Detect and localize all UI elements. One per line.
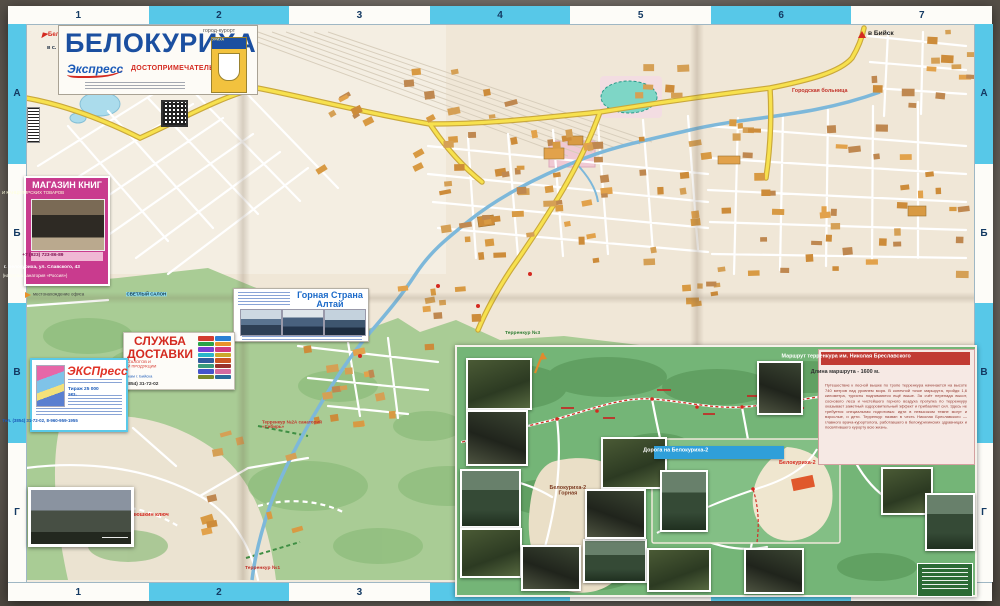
mountain-photo [282, 309, 324, 336]
grid-top-label: 2 [149, 6, 290, 24]
trail-photo [521, 545, 581, 591]
road-title: Дорога на Белокуриха-2 [611, 446, 740, 454]
delivery-title2: ДОСТАВКИ [124, 348, 196, 361]
bookstore-note: местонахождение офиса [33, 292, 84, 297]
grid-top-label: 4 [430, 6, 571, 24]
client-logo-chip [215, 358, 231, 363]
crest-label: БЕЛОКУРИХА [212, 38, 229, 42]
grid-bottom-label: 3 [289, 583, 430, 601]
express-brand: ЭКСПресс [67, 364, 128, 378]
route-description-panel: Маршрут терренкура им. Николая Бреславск… [818, 349, 975, 465]
label-terrenkur3: Терренкур №3 [505, 330, 540, 335]
trail-photo [460, 469, 521, 528]
office-arrow-icon [25, 292, 31, 298]
bookstore-ad: МАГАЗИН КНИГ И КАНЦЕЛЯРСКИХ ТОВАРОВ +7 (… [24, 176, 110, 286]
trail-photo [460, 528, 522, 578]
altai-ad: Горная Страна Алтай [233, 288, 369, 342]
label-terrenkur2: Терренкур №2А санаторий «Сибирь» [262, 420, 332, 429]
trail-photo [744, 548, 804, 594]
client-logo-chip [198, 342, 214, 347]
bookstore-phone: +7 (923) 723-86-89 [7, 252, 79, 257]
grid-left-label: Г [8, 443, 26, 583]
label-bel2-gornaya: Белокуриха-2Горная [555, 485, 629, 504]
altai-fine-print [238, 292, 290, 305]
photo-caption [102, 537, 128, 541]
mountain-photo [240, 309, 282, 336]
grid-band-top: 1234567 [8, 6, 992, 25]
bookstore-photo [31, 199, 105, 251]
client-logo-chip [198, 347, 214, 352]
delivery-ad: СЛУЖБА ДОСТАВКИ РЕКЛАМНЫХ КАТАЛОГОВ ИДРУ… [123, 332, 235, 390]
client-logo-chip [198, 369, 214, 374]
client-logo-chip [215, 353, 231, 358]
express-fine-print [68, 379, 122, 385]
client-logo-chip [215, 342, 231, 347]
mountain-photo [324, 309, 366, 336]
client-logo-chip [215, 375, 231, 380]
magazine-cover [36, 365, 65, 407]
bookstore-note-highlight: СВЕТЛЫЙ САЛОН [126, 292, 167, 297]
client-logo-chip [198, 353, 214, 358]
grid-top-label: 3 [289, 6, 430, 24]
client-logo-chip [198, 358, 214, 363]
publisher-fine-print [922, 568, 968, 592]
trail-photo [601, 437, 667, 489]
route-title: Маршрут терренкура им. Николая Бреславск… [772, 352, 920, 360]
trail-photo [466, 410, 528, 466]
label-hospital: Городская больница [792, 88, 848, 94]
qr-code [161, 100, 188, 127]
publisher-box [917, 563, 973, 597]
client-logo-chip [198, 364, 214, 369]
client-logo-chip [198, 336, 214, 341]
barcode [27, 107, 40, 143]
tagline: город-курорт [203, 27, 235, 33]
trail-photo [466, 358, 532, 410]
altai-fine-print [242, 336, 362, 341]
grid-bottom-label: 1 [8, 583, 149, 601]
grid-band-left: АБВГ [8, 24, 27, 582]
client-logo-chip [215, 347, 231, 352]
bookstore-subtitle: И КАНЦЕЛЯРСКИХ ТОВАРОВ [0, 190, 74, 195]
bookstore-address: г. Белокуриха, ул. Славского, 43 [2, 264, 82, 269]
trail-photo [647, 548, 711, 592]
grid-top-label: 1 [8, 6, 149, 24]
express-logo: Экспресс [67, 62, 123, 78]
delivery-title: СЛУЖБА [124, 335, 196, 348]
grid-top-label: 7 [851, 6, 992, 24]
arrow-biysk-icon [858, 31, 866, 38]
grid-top-label: 6 [711, 6, 852, 24]
express-fine-print [68, 395, 122, 405]
label-bel2: Белокуриха-2 [779, 459, 816, 465]
city-crest: БЕЛОКУРИХА [211, 37, 247, 93]
client-logo-chip [215, 369, 231, 374]
client-logo-chip [215, 364, 231, 369]
grid-right-label: Б [975, 164, 993, 304]
client-logo-chip [198, 375, 214, 380]
route-text: Путешествие к лесной вышке по тропе терр… [825, 383, 967, 430]
express-ad: ЭКСПресс Тираж 25 000 экз. Тел. (3854) 3… [30, 358, 128, 432]
photo-background: 1234567 1234567 АБВГ АБВГ БЕЛОКУРИХА гор… [0, 0, 1000, 606]
bookstore-title: МАГАЗИН КНИГ [26, 180, 108, 190]
grid-right-label: А [975, 24, 993, 164]
trail-photo [583, 539, 647, 583]
title-block: БЕЛОКУРИХА город-курорт Экспресс ДОСТОПР… [58, 25, 258, 95]
map-sheet: 1234567 1234567 АБВГ АБВГ БЕЛОКУРИХА гор… [8, 6, 992, 600]
grid-left-label: А [8, 24, 26, 164]
trail-photo [925, 493, 975, 551]
altai-title2: Алтай [294, 300, 366, 309]
express-fine-print [36, 408, 122, 416]
road-to-bel2-band: Дорога на Белокуриха-2 [654, 446, 784, 459]
express-phone: Тел. (3854) 31-72-02, 8-960-959-1955 [0, 418, 88, 423]
spring-photo [28, 487, 134, 547]
label-to-biysk: в Бийск [868, 30, 894, 37]
grid-bottom-label: 2 [149, 583, 290, 601]
client-logos [198, 336, 234, 388]
client-logo-chip [215, 336, 231, 341]
trail-photo [660, 470, 708, 532]
label-terrenkur1: Терренкур №1 [245, 565, 280, 570]
bookstore-address2: (напротив санатория «Россия») [0, 273, 75, 278]
fine-print [85, 82, 185, 90]
route-length: Длина маршрута - 1600 м. [769, 368, 921, 374]
terrenkur-inset-panel: Маршрут терренкура им. Николая Бреславск… [455, 345, 977, 597]
grid-top-label: 5 [570, 6, 711, 24]
